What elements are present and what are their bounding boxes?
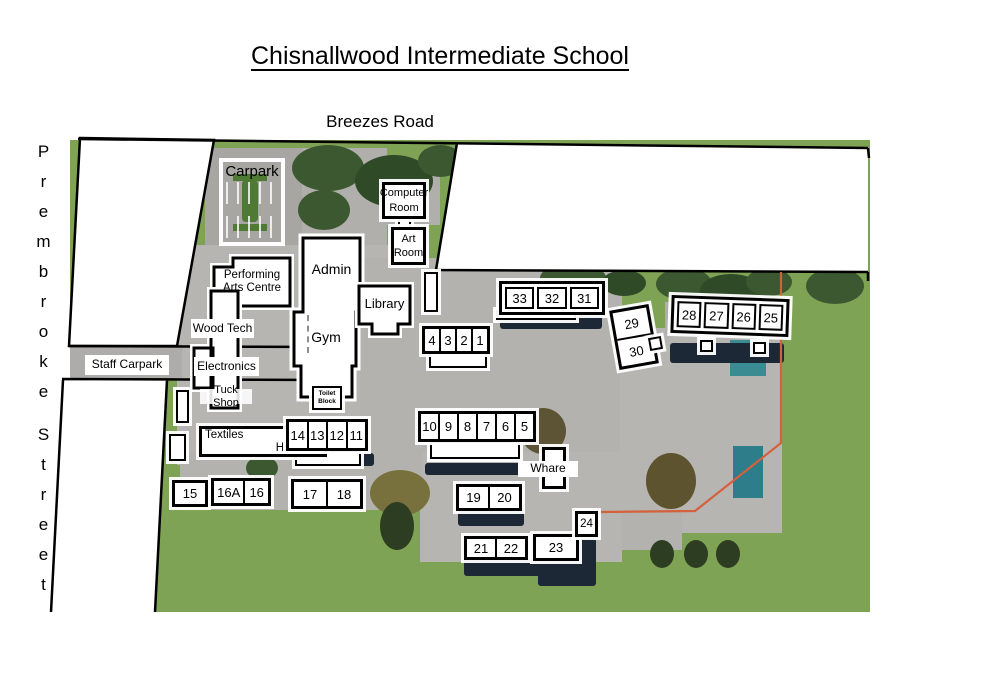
boundary-lines-layer [0, 0, 1000, 698]
toilet-block-text2: Block [318, 398, 336, 406]
room-16: 16 [245, 481, 268, 503]
staff-carpark-label: Staff Carpark [85, 355, 169, 375]
admin-label: Admin [303, 260, 360, 278]
block-28-25-annex [753, 342, 766, 354]
room-31: 31 [570, 287, 599, 309]
room-28: 28 [677, 301, 702, 328]
block-10-to-5: 10 9 8 7 6 5 [418, 411, 536, 442]
block-17-18: 17 18 [291, 479, 363, 509]
tuck-shop-label: Tuck Shop [200, 389, 252, 404]
block-24: 24 [575, 511, 598, 537]
room-14: 14 [289, 422, 309, 448]
room-32: 32 [537, 287, 566, 309]
room-9: 9 [440, 414, 459, 439]
school-map: Chisnallwood Intermediate School Breezes… [0, 0, 1000, 698]
room-27: 27 [704, 302, 729, 329]
room-1: 1 [473, 329, 487, 351]
library-label: Library [359, 296, 410, 312]
computer-room-building: Computer Room [382, 182, 426, 219]
room-3: 3 [441, 329, 457, 351]
small-building [176, 390, 189, 423]
whare-label: Whare [518, 461, 578, 477]
cutout-bottom-left [51, 380, 167, 612]
room-24: 24 [578, 514, 595, 534]
room-19: 19 [459, 487, 490, 508]
block-16A-16: 16A 16 [211, 478, 271, 506]
art-room-label: Art Room [394, 232, 423, 261]
toilet-block-text1: Toilet [319, 390, 336, 398]
cutout-top-left [69, 138, 214, 346]
room-18: 18 [328, 482, 360, 506]
block-19-20: 19 20 [456, 484, 522, 511]
block-33-32-31: 33 32 31 [499, 281, 605, 315]
carpark-label: Carpark [223, 163, 281, 180]
small-building [169, 434, 186, 461]
wood-tech-text: Wood Tech [193, 322, 253, 336]
room-33: 33 [505, 287, 534, 309]
room-21: 21 [467, 539, 497, 557]
carpark-area: Carpark [219, 158, 285, 246]
library-text: Library [365, 297, 405, 312]
block-28-25-annex [700, 340, 713, 352]
toilet-block-building: Toilet Block [312, 386, 342, 410]
room-23: 23 [536, 537, 576, 558]
computer-room-label: Computer Room [380, 186, 428, 215]
block-29-30-annex [648, 336, 663, 351]
whare-text: Whare [530, 462, 565, 476]
block-15: 15 [172, 480, 208, 507]
room-15: 15 [175, 483, 205, 504]
small-building [424, 272, 438, 312]
room-26: 26 [731, 303, 756, 330]
room-2: 2 [457, 329, 473, 351]
room-10: 10 [421, 414, 440, 439]
building-base [430, 441, 520, 459]
parking-lines [226, 216, 278, 238]
electronics-text: Electronics [197, 360, 256, 374]
electronics-label: Electronics [194, 357, 259, 376]
room-25: 25 [758, 304, 783, 331]
room-13: 13 [309, 422, 329, 448]
performing-arts-text: Performing Arts Centre [215, 269, 289, 295]
room-20: 20 [490, 487, 519, 508]
textiles-label: Textiles [205, 429, 243, 441]
gym-label: Gym [296, 328, 356, 346]
room-5: 5 [516, 414, 533, 439]
street-label-prembroke: Prembroke [33, 142, 53, 412]
tuck-shop-text: Tuck Shop [200, 384, 252, 409]
gym-text: Gym [311, 329, 341, 345]
room-17: 17 [294, 482, 328, 506]
cutout-top-right [436, 143, 868, 272]
block-23: 23 [533, 534, 579, 561]
block-21-22: 21 22 [464, 536, 528, 560]
building-base [429, 352, 487, 368]
parking-lines [226, 182, 278, 204]
room-6: 6 [497, 414, 516, 439]
room-12: 12 [328, 422, 348, 448]
room-11: 11 [348, 422, 366, 448]
room-16A: 16A [214, 481, 245, 503]
art-room-building: Art Room [391, 227, 426, 265]
road-label-breezes: Breezes Road [318, 112, 442, 132]
block-4-3-2-1: 4 3 2 1 [422, 326, 490, 354]
room-8: 8 [459, 414, 478, 439]
staff-carpark-text: Staff Carpark [92, 358, 162, 372]
room-4: 4 [425, 329, 441, 351]
performing-arts-label: Performing Arts Centre [215, 262, 289, 302]
wood-tech-label: Wood Tech [191, 319, 254, 338]
room-22: 22 [497, 539, 525, 557]
admin-text: Admin [312, 261, 352, 277]
page-title: Chisnallwood Intermediate School [0, 42, 880, 71]
room-7: 7 [478, 414, 497, 439]
block-28-27-26-25: 28 27 26 25 [670, 295, 789, 337]
block-14-to-11: 14 13 12 11 [286, 419, 368, 451]
street-label-street: Street [33, 425, 53, 605]
